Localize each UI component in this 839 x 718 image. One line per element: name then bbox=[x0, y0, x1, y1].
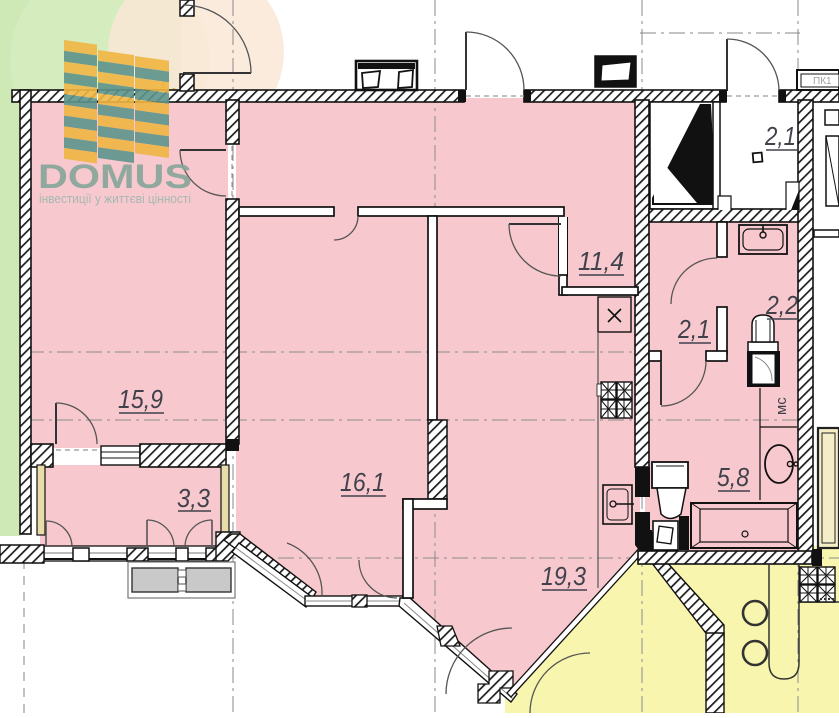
svg-text:3,3: 3,3 bbox=[177, 483, 210, 513]
svg-text:16,1: 16,1 bbox=[340, 467, 385, 497]
svg-text:мс: мс bbox=[773, 397, 790, 415]
svg-text:2,1: 2,1 bbox=[677, 314, 710, 344]
svg-text:2,2: 2,2 bbox=[765, 290, 798, 320]
svg-text:15,9: 15,9 bbox=[118, 384, 163, 414]
svg-text:2,1: 2,1 bbox=[764, 121, 796, 151]
svg-text:ПК1: ПК1 bbox=[813, 76, 832, 87]
svg-text:інвестиції у життєві цінності: інвестиції у життєві цінності bbox=[39, 192, 191, 206]
svg-text:19,3: 19,3 bbox=[541, 561, 586, 591]
svg-text:5,8: 5,8 bbox=[717, 462, 749, 492]
svg-text:11,4: 11,4 bbox=[578, 246, 624, 276]
svg-text:DOMUS: DOMUS bbox=[38, 158, 192, 196]
